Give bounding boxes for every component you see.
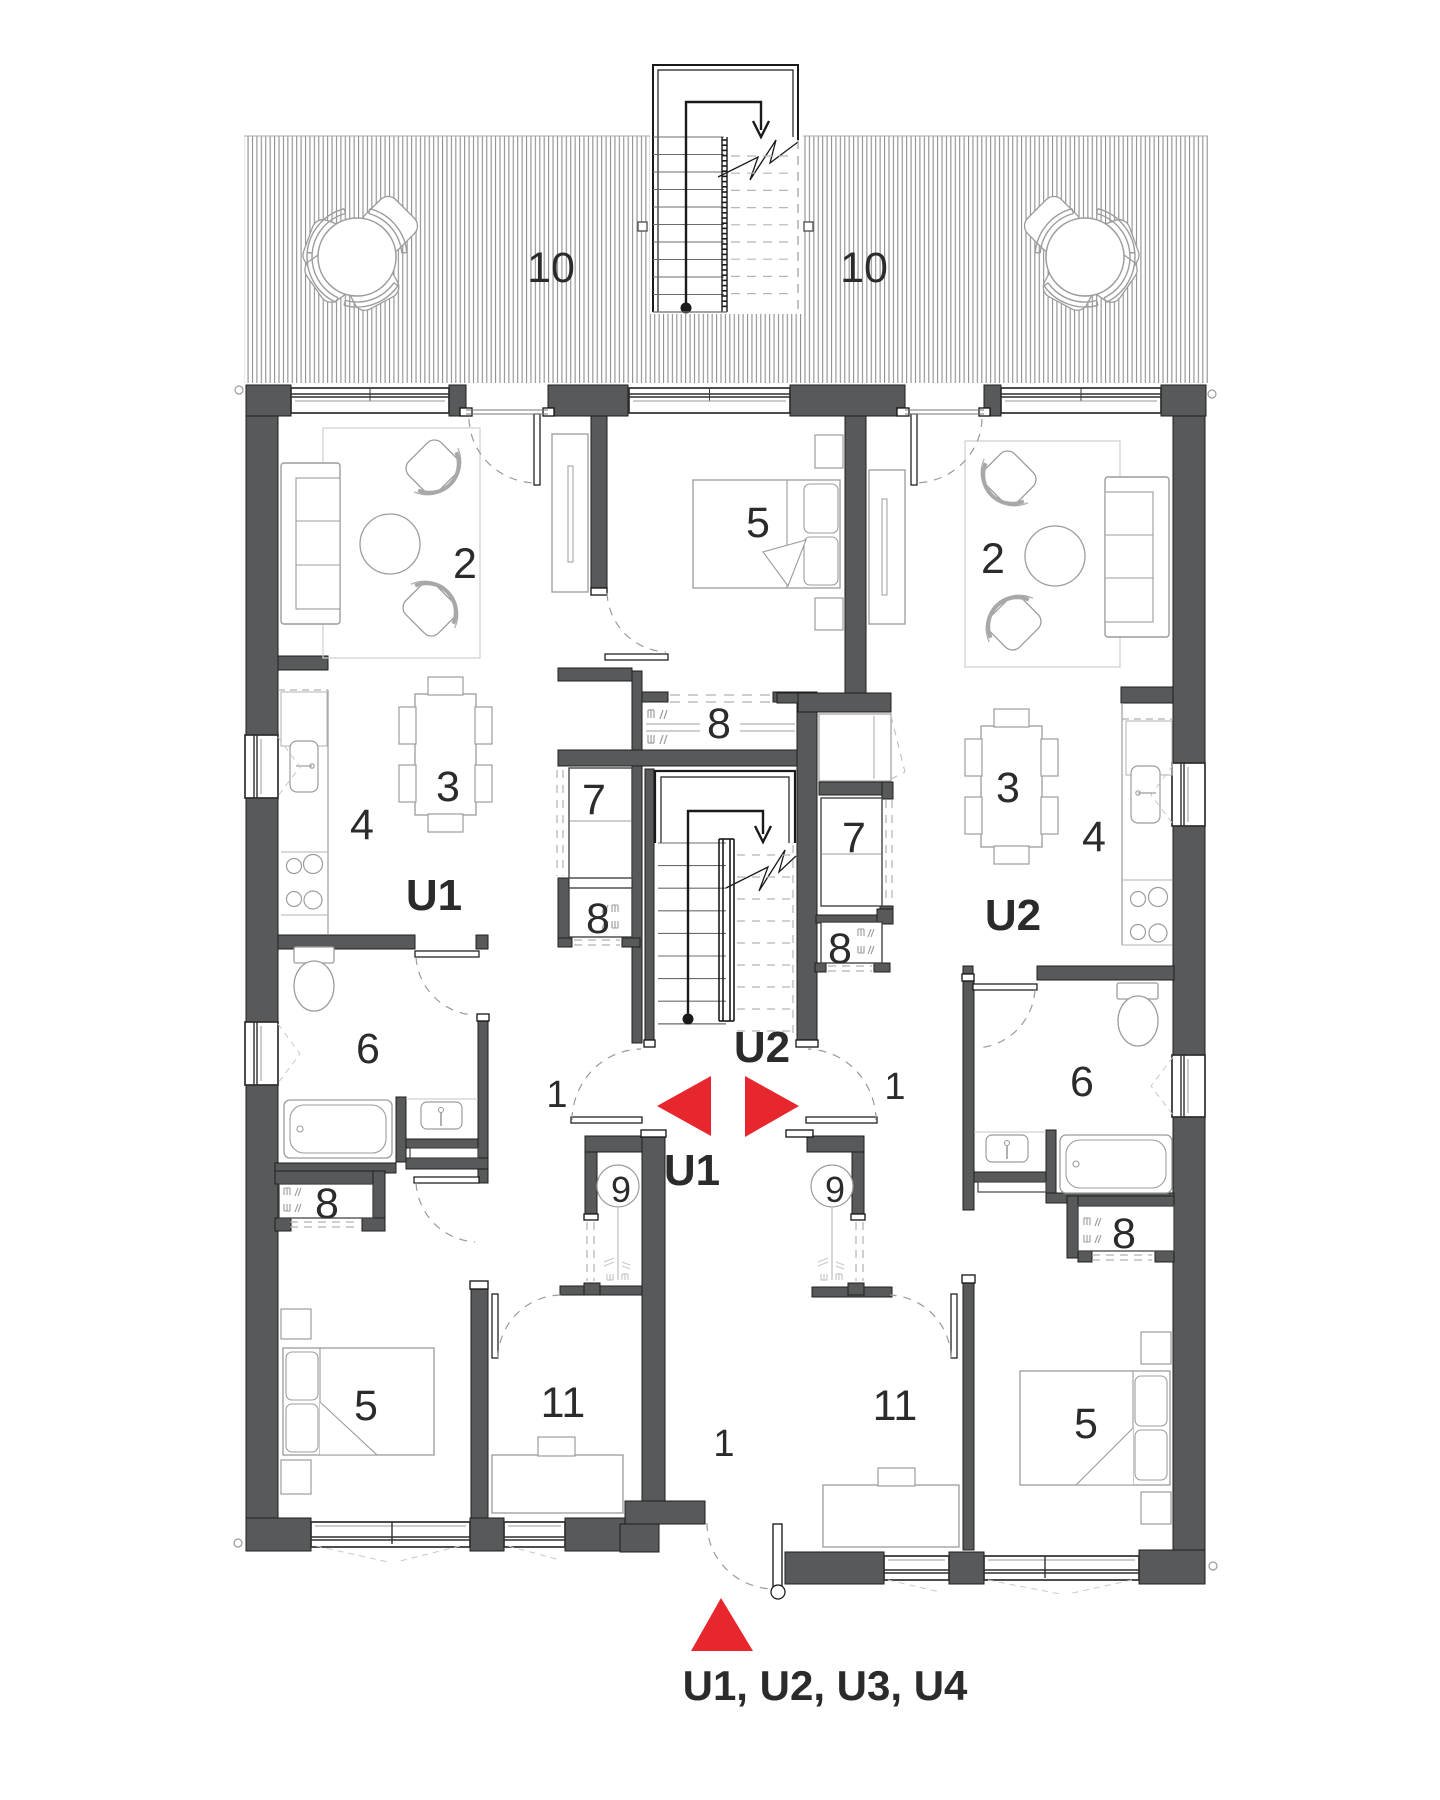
svg-text:3: 3 [436,763,460,811]
svg-text:1: 1 [884,1066,905,1108]
svg-text:7: 7 [842,814,866,862]
svg-text:5: 5 [354,1382,378,1430]
svg-text:7: 7 [582,776,606,824]
svg-text:9: 9 [825,1169,845,1210]
svg-text:5: 5 [1074,1400,1098,1448]
svg-text:8: 8 [315,1180,339,1228]
svg-text:8: 8 [1112,1210,1136,1258]
svg-text:8: 8 [707,700,731,748]
svg-text:11: 11 [541,1379,586,1427]
svg-text:U1: U1 [664,1146,720,1195]
svg-text:9: 9 [611,1169,631,1210]
svg-text:8: 8 [828,925,852,973]
svg-text:U2: U2 [734,1023,790,1072]
svg-text:10: 10 [840,244,888,292]
svg-text:4: 4 [350,801,374,849]
svg-text:8: 8 [586,895,610,943]
svg-text:1: 1 [713,1423,734,1465]
svg-text:3: 3 [996,764,1020,812]
svg-text:U2: U2 [985,891,1041,940]
svg-text:10: 10 [527,244,575,292]
svg-text:6: 6 [1070,1058,1094,1106]
svg-text:2: 2 [453,540,477,588]
svg-text:11: 11 [873,1382,918,1430]
svg-text:U1, U2, U3, U4: U1, U2, U3, U4 [683,1662,968,1709]
svg-text:6: 6 [356,1025,380,1073]
svg-text:U1: U1 [406,871,462,920]
svg-text:1: 1 [546,1074,567,1116]
svg-text:4: 4 [1082,813,1106,861]
svg-text:5: 5 [746,499,770,547]
svg-text:2: 2 [981,535,1005,583]
